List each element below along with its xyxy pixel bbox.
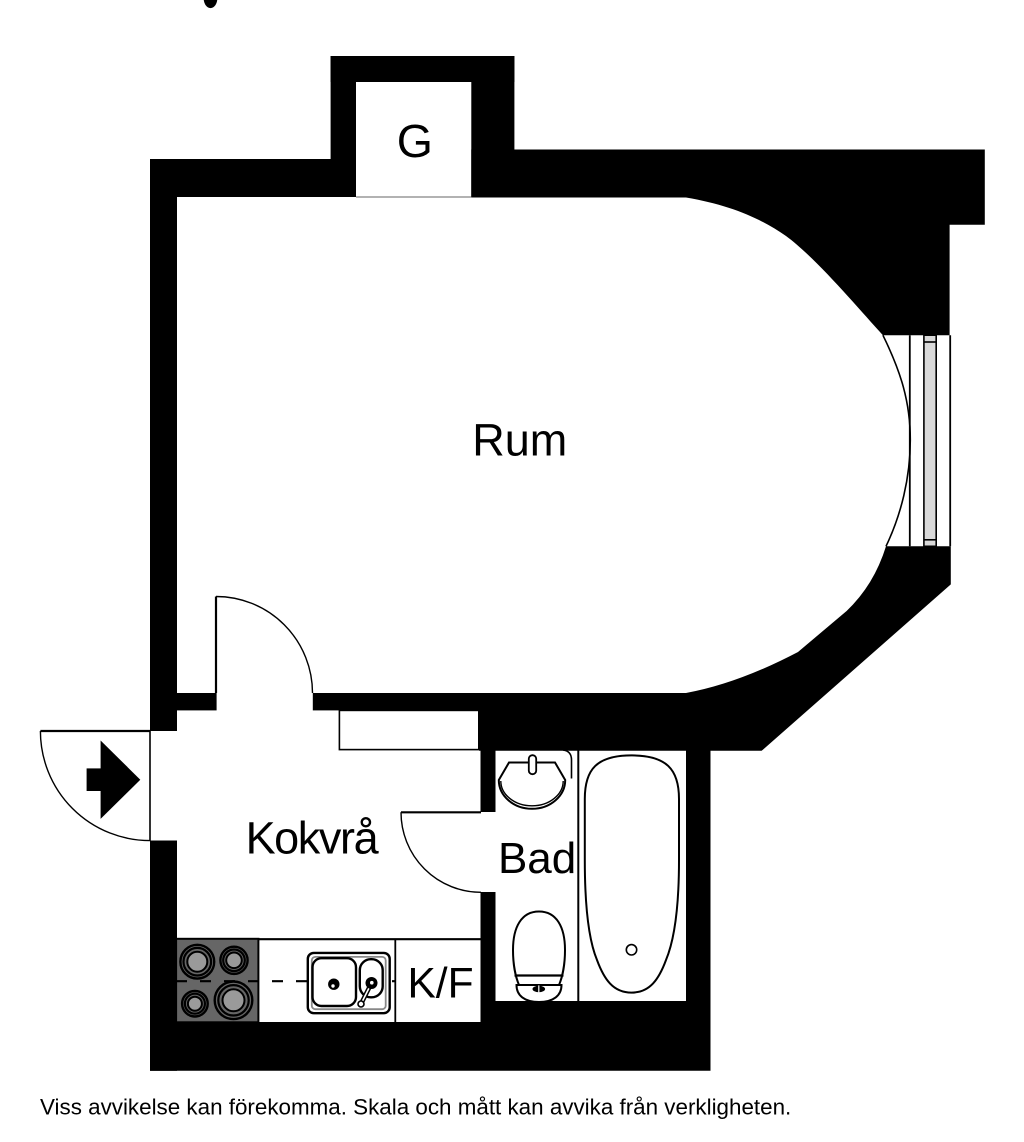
svg-text:G: G: [397, 115, 433, 167]
svg-text:K/F: K/F: [407, 961, 473, 1008]
svg-text:Bad: Bad: [498, 834, 576, 883]
svg-text:Rum: Rum: [472, 415, 567, 466]
svg-text:Viss avvikelse kan förekomma.: Viss avvikelse kan förekomma. Skala och …: [40, 1094, 791, 1119]
svg-text:Kokvrå: Kokvrå: [246, 813, 380, 864]
